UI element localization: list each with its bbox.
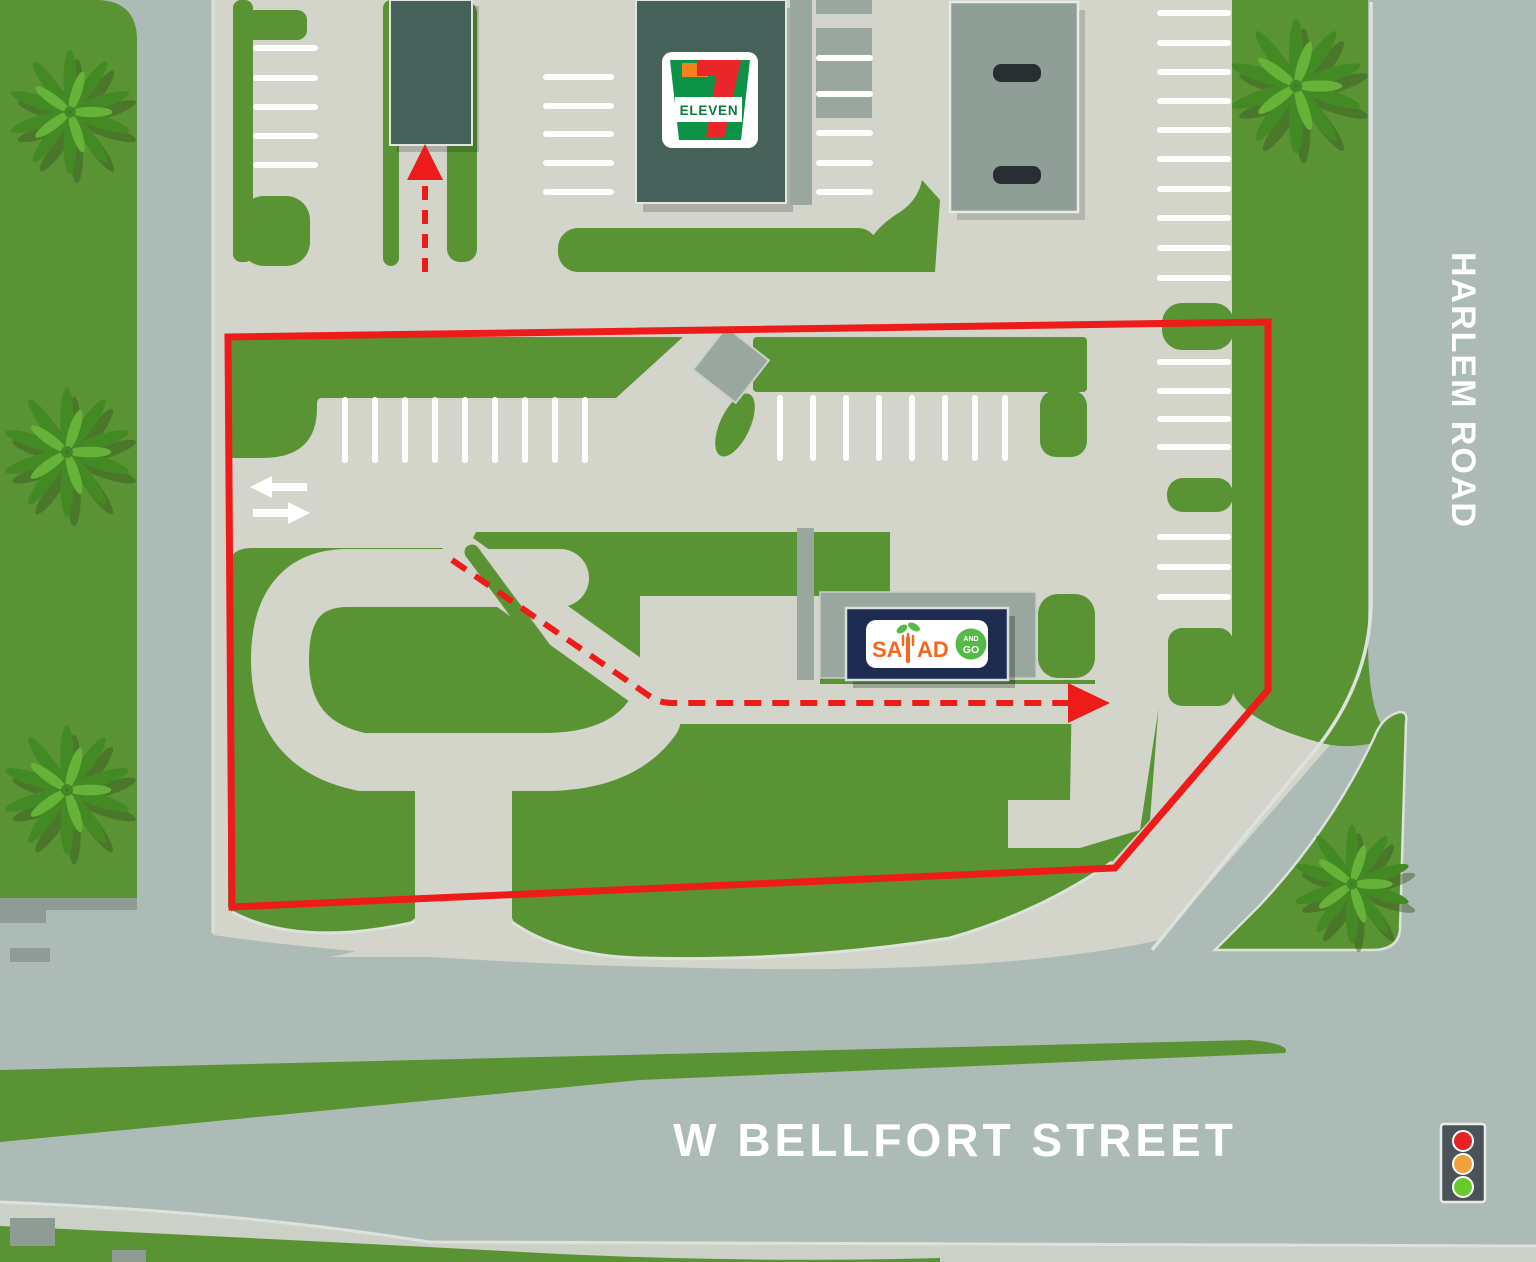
fuel-canopy [950,2,1085,220]
bellfort-street-label: W BELLFORT STREET [673,1114,1237,1166]
site-map: ELEVEN SA AD AND GO [0,0,1536,1262]
salad-wordmark-left: SA [872,637,903,662]
signal-green-light [1453,1177,1473,1197]
west-driveway-stub [0,898,137,910]
badge-and: AND [963,636,978,643]
signal-red-light [1453,1131,1473,1151]
signal-amber-light [1453,1154,1473,1174]
fuel-pump-island [993,166,1041,184]
traffic-light-icon [1441,1124,1485,1202]
salad-walkway [797,528,814,680]
harlem-road-label: HARLEM ROAD [1444,252,1482,529]
south-driveway-stub-2 [112,1250,146,1262]
salad-and-go-sign: SA AD AND GO [846,608,1015,688]
seven-eleven-logo: ELEVEN [662,52,758,148]
seven-eleven-building: ELEVEN [636,0,793,212]
west-driveway-stub-3 [10,948,50,962]
eleven-wordmark: ELEVEN [680,103,739,118]
salad-wordmark-right: AD [917,637,949,662]
fuel-pump-island [993,64,1041,82]
south-driveway-stub [10,1218,55,1246]
north-drive-thru-building [390,0,479,152]
badge-go: GO [963,644,979,656]
west-driveway-stub-2 [0,910,46,923]
